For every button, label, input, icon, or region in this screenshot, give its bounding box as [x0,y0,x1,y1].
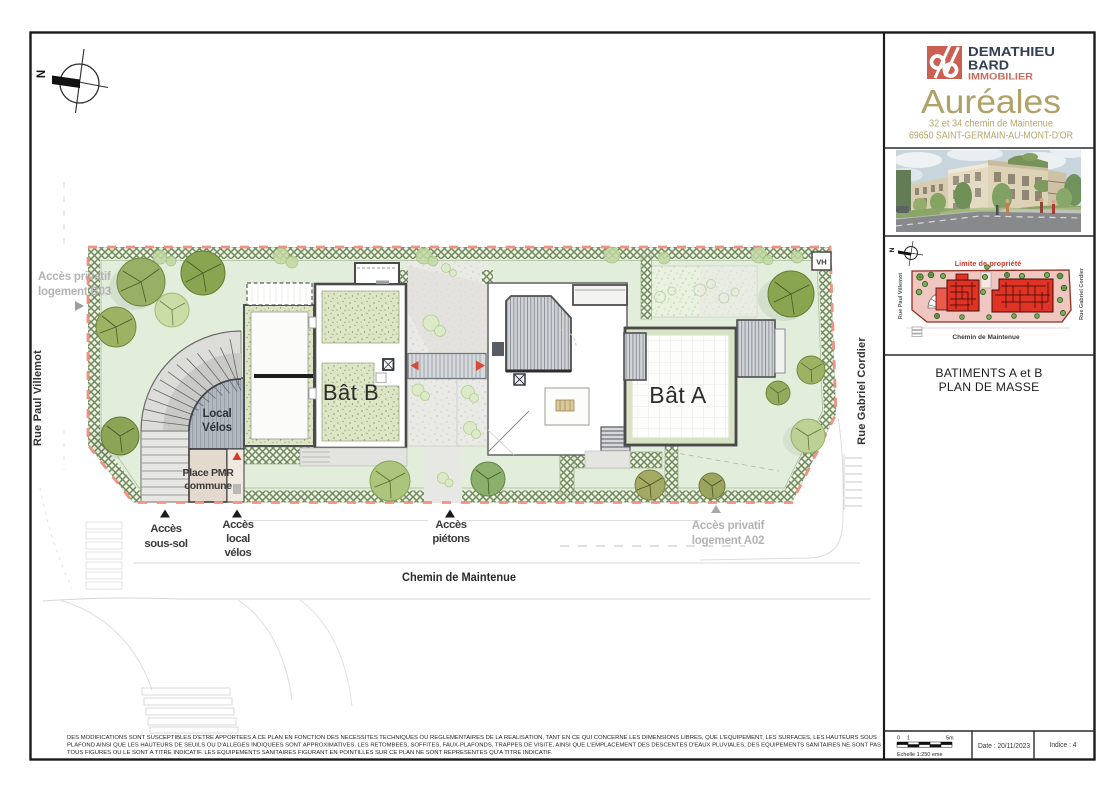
svg-text:PLAN DE MASSE: PLAN DE MASSE [939,380,1040,394]
svg-text:piétons: piétons [432,533,469,545]
svg-text:Bât A: Bât A [649,382,707,408]
svg-text:Rue Paul Villemot: Rue Paul Villemot [898,273,904,320]
svg-text:Auréales: Auréales [921,84,1061,121]
svg-text:Echelle 1:250 eme: Echelle 1:250 eme [897,752,943,758]
svg-text:logement A02: logement A02 [692,535,765,547]
svg-text:32 et 34 chemin de Maintenue: 32 et 34 chemin de Maintenue [929,119,1053,130]
svg-text:logement B03: logement B03 [38,286,111,298]
svg-text:local: local [226,533,250,545]
svg-text:Rue Gabriel Cordier: Rue Gabriel Cordier [1079,267,1085,320]
svg-text:Accès: Accès [222,519,253,531]
svg-text:1: 1 [907,736,910,742]
svg-text:5m: 5m [946,736,954,742]
svg-text:DES MODIFICATIONS SONT SUSCEPT: DES MODIFICATIONS SONT SUSCEPTIBLES D'ET… [67,735,877,741]
svg-text:Indice : 4: Indice : 4 [1050,740,1077,749]
svg-text:Rue Paul Villemot: Rue Paul Villemot [32,350,44,446]
svg-text:N: N [889,247,896,252]
svg-text:vélos: vélos [225,547,252,559]
svg-text:VH: VH [816,258,826,267]
svg-text:BARD: BARD [968,59,1009,73]
svg-text:Chemin de Maintenue: Chemin de Maintenue [402,570,516,584]
svg-text:Accès privatif: Accès privatif [692,520,765,532]
svg-text:Rue Gabriel Cordier: Rue Gabriel Cordier [856,337,868,445]
svg-text:Accès: Accès [435,519,466,531]
svg-text:Vélos: Vélos [202,422,232,434]
svg-text:PLAFOND AINSI QUE LES HAUTEURS: PLAFOND AINSI QUE LES HAUTEURS DE SEUILS… [67,743,881,749]
svg-text:Chemin de Maintenue: Chemin de Maintenue [952,334,1020,341]
svg-text:Accès privatif: Accès privatif [38,271,111,283]
svg-text:TOUS FIGURES OU LE SONT A TITR: TOUS FIGURES OU LE SONT A TITRE INDICATI… [67,750,553,756]
svg-text:Date : 20/11/2023: Date : 20/11/2023 [978,741,1030,750]
svg-text:N: N [36,70,48,78]
svg-text:Accès: Accès [150,523,181,535]
svg-text:0: 0 [897,736,900,742]
svg-text:69650 SAINT-GERMAIN-AU-MONT-D': 69650 SAINT-GERMAIN-AU-MONT-D'OR [909,131,1073,142]
svg-text:sous-sol: sous-sol [144,538,188,550]
svg-text:Local: Local [202,408,231,420]
svg-text:Place PMR: Place PMR [183,467,235,479]
svg-text:Bât B: Bât B [323,380,379,405]
svg-text:BATIMENTS A et B: BATIMENTS A et B [935,366,1042,380]
svg-text:commune: commune [184,480,232,492]
svg-text:IMMOBILIER: IMMOBILIER [968,72,1033,83]
svg-text:DEMATHIEU: DEMATHIEU [968,45,1055,59]
